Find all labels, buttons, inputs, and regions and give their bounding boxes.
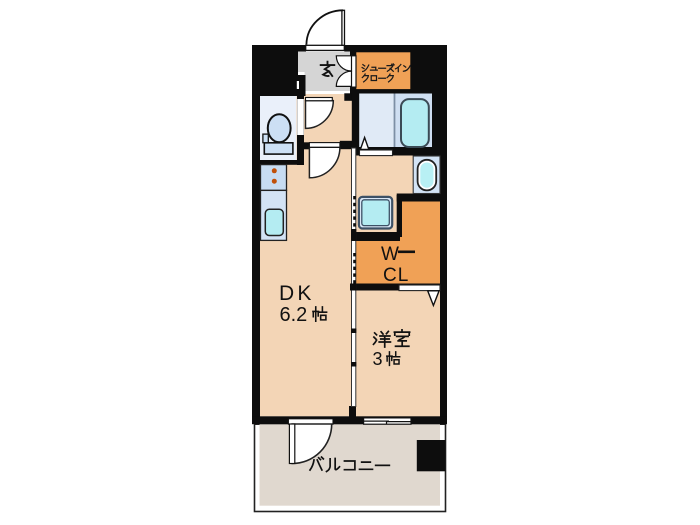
svg-text:CL: CL [383,265,409,286]
svg-text:6.2: 6.2 [280,304,308,326]
svg-text:3: 3 [373,349,383,369]
svg-text:W: W [381,244,399,265]
svg-text:DK: DK [279,282,315,305]
